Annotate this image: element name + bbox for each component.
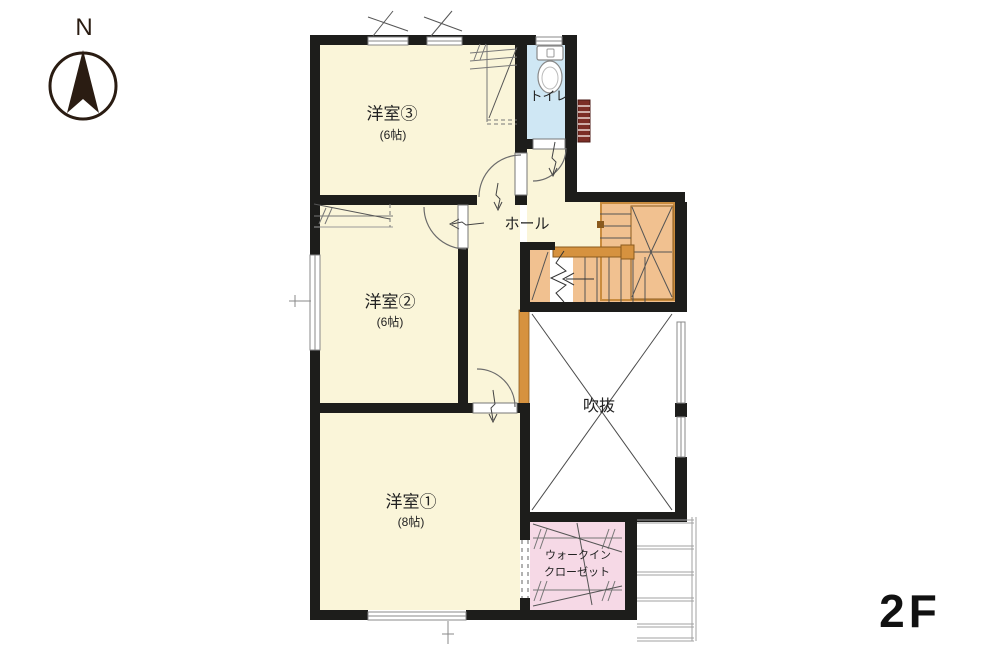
room3-size-label: (6帖): [380, 129, 407, 141]
wall-segment: [520, 242, 530, 312]
room1-label: 洋室①: [386, 494, 437, 511]
floor-plan: N 洋室③ (6帖) 洋室② (6帖) 洋室① (8帖) トイレ ホール 吹抜 …: [0, 0, 1000, 667]
wall-segment: [565, 35, 577, 202]
hall-floor: [565, 202, 600, 252]
void-label: 吹抜: [583, 399, 615, 415]
compass-north-label: N: [75, 16, 92, 40]
wall-segment: [675, 403, 687, 417]
wic-label-line1: ウォークイン: [545, 551, 611, 562]
window-room3-left: [368, 11, 408, 45]
wic-opening-dashed: [522, 540, 528, 598]
wall-segment: [310, 195, 477, 205]
louver-vent: [578, 100, 590, 142]
wall-segment: [520, 598, 530, 620]
window-room3-right: [424, 11, 462, 45]
wall-segment: [515, 195, 527, 205]
stair-break-line: [551, 251, 566, 302]
room2-label: 洋室②: [365, 294, 416, 311]
stair-newel-post: [621, 245, 634, 259]
toilet-label: トイレ: [529, 90, 568, 103]
stair-handrail: [553, 247, 631, 257]
room1-floor: [320, 413, 520, 610]
wall-segment: [515, 35, 527, 153]
wall-segment: [675, 457, 687, 512]
floor-indicator: 2F: [879, 588, 941, 634]
wic-label-line2: クローゼット: [544, 568, 610, 579]
wall-segment: [527, 139, 533, 149]
wall-segment: [458, 247, 468, 403]
stair-post-dot: [597, 221, 604, 228]
floor-plan-drawing: [0, 0, 1000, 667]
hall-label: ホール: [504, 217, 549, 232]
window-void-lower: [677, 417, 685, 457]
wall-segment: [310, 35, 320, 255]
room1-size-label: (8帖): [398, 516, 425, 528]
wall-segment: [520, 242, 555, 250]
floor-fills: [320, 45, 675, 610]
window-void-upper: [677, 322, 685, 403]
north-arrow-icon: [50, 50, 116, 119]
room3-label: 洋室③: [367, 106, 418, 123]
wall-segment: [520, 403, 530, 522]
window-room1-bottom: [368, 612, 466, 644]
wall-segment: [310, 610, 368, 620]
wall-segment: [310, 35, 536, 45]
hall-floor: [527, 140, 565, 250]
lower-roof: [637, 517, 696, 641]
wall-segment: [565, 192, 685, 202]
window-room2-left: [289, 255, 320, 350]
wall-segment: [517, 403, 530, 413]
void-rail-strip: [519, 310, 529, 405]
wall-segment: [310, 350, 320, 620]
wall-segment: [520, 302, 687, 312]
wall-segment: [625, 512, 637, 620]
wall-segment: [675, 202, 687, 312]
toilet-icon: [537, 46, 563, 93]
wall-segment: [310, 403, 473, 413]
window-toilet: [536, 37, 562, 45]
wall-segment: [466, 610, 637, 620]
room2-size-label: (6帖): [377, 316, 404, 328]
wall-segment: [520, 522, 530, 540]
